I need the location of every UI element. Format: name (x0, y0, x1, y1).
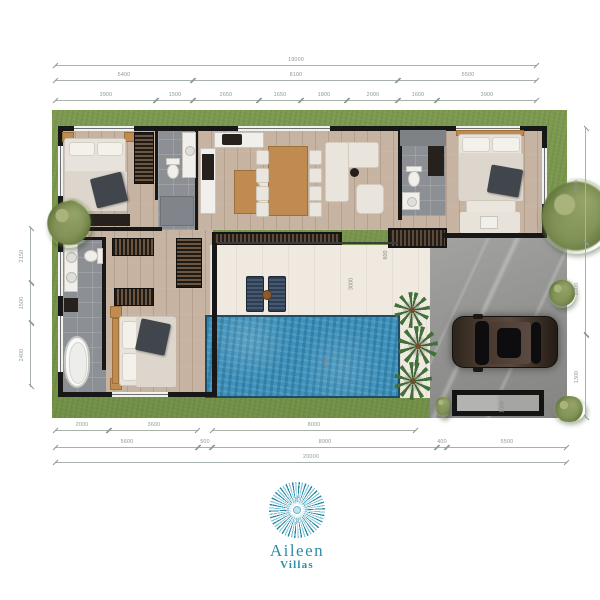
bush-right-mid (548, 278, 576, 308)
dimension-segment: 2000 (347, 100, 398, 101)
dimension-label: 3600 (147, 422, 160, 427)
window-living-top (238, 126, 330, 131)
toilet-bowl (84, 250, 98, 262)
lounger-table (262, 290, 272, 300)
dimension-segment: 2650 (193, 100, 259, 101)
dimension-label: 8100 (289, 72, 302, 77)
dining-chair (256, 168, 269, 183)
dimension-label: 5500 (501, 439, 514, 444)
shower-bathroom-1 (160, 196, 194, 226)
dimension-label: 2150 (19, 249, 24, 262)
kitchen-sink (222, 134, 242, 145)
dimension-label: 8900 (318, 439, 331, 444)
dining-chair (256, 186, 269, 201)
dimension-label: 5000 (574, 179, 579, 192)
shower-bathroom-2 (400, 130, 446, 146)
dimension-segment: 5000 (585, 128, 586, 243)
sink-bathroom-2 (407, 197, 417, 207)
timber-deck-right (388, 228, 447, 248)
dimension-segment: 19000 (55, 65, 537, 66)
dimension-label: 19000 (288, 57, 304, 62)
dimension-label: 1500 (19, 297, 24, 310)
car-windshield (475, 321, 489, 365)
sofa-chaise (325, 142, 349, 202)
dimension-segment: 8000 (212, 430, 416, 431)
wardrobe-corridor (176, 238, 202, 288)
bush-right-bottom (552, 396, 586, 422)
dimension-segment: 5400 (55, 80, 193, 81)
pillow (122, 321, 137, 349)
toilet-bowl (167, 164, 179, 179)
window-bedroom1-top (74, 126, 134, 131)
sliding-door-terrace (217, 242, 398, 244)
dimension-segment: 1300 (585, 335, 586, 418)
car-mirror (473, 367, 483, 372)
dining-chair (309, 168, 322, 183)
dimension-segment: 1800 (301, 100, 347, 101)
interior-dimension-label: 600 (383, 250, 388, 259)
dimension-segment: 5000 (585, 243, 586, 335)
dimension-segment: 1600 (398, 100, 437, 101)
interior-dimension-label: 3000 (349, 278, 354, 290)
toilet-bowl (408, 171, 420, 187)
palm-tree (398, 326, 438, 366)
dimension-label: 1500 (168, 92, 181, 97)
bed-bedroom-2 (458, 134, 522, 200)
dimension-label: 2400 (19, 349, 24, 362)
dimension-label: 20000 (303, 454, 319, 459)
pillow (122, 353, 137, 381)
pillow (97, 142, 123, 156)
dimension-label: 3900 (481, 92, 494, 97)
dimension-segment: 3900 (55, 100, 156, 101)
dimension-segment: 1500 (30, 283, 31, 323)
bathtub (64, 336, 90, 388)
wall-leftwing-right (212, 244, 217, 397)
wall-bedroom1-bathroom1 (155, 130, 158, 200)
dimension-segment: 5500 (398, 80, 537, 81)
floor-plan-canvas: Aileen Villas 19000540081005500390015002… (0, 0, 600, 600)
dimension-segment: 1500 (156, 100, 193, 101)
bed-bedroom-3 (119, 316, 175, 386)
dimension-segment: 1650 (259, 100, 301, 101)
sink-bathroom-3 (66, 272, 77, 283)
wardrobe-corridor (114, 288, 154, 306)
headboard-bedroom-3 (112, 318, 119, 384)
dresser-bedroom-1 (86, 214, 130, 226)
interior-dimension-label: 3000 (324, 355, 329, 367)
driveway-gate (452, 390, 544, 416)
palm-tree (394, 362, 432, 400)
wardrobe-bedroom-1 (134, 132, 154, 184)
window-bedroom3-left (58, 316, 63, 372)
dimension-label: 1650 (274, 92, 287, 97)
window-bathroom3-left (58, 252, 63, 296)
dimension-segment: 2000 (55, 430, 109, 431)
dimension-label: 5500 (461, 72, 474, 77)
logo-name: Aileen (237, 541, 357, 561)
dimension-segment: 8100 (193, 80, 398, 81)
dimension-label: 500 (200, 439, 210, 444)
sink-bathroom-3 (66, 252, 77, 263)
rug-table (480, 216, 498, 229)
laundry-unit (64, 298, 78, 312)
dining-chair (256, 202, 269, 217)
car-mirror (473, 314, 483, 319)
dimension-segment: 3600 (109, 430, 198, 431)
bathtub-basin (69, 342, 87, 384)
dimension-label: 8000 (308, 422, 321, 427)
dimension-label: 5600 (120, 439, 133, 444)
side-table (350, 168, 359, 177)
dining-chair (309, 186, 322, 201)
wall-bedroom2-bottom (443, 233, 547, 238)
wardrobe-corridor (112, 238, 154, 256)
logo-subtitle: Villas (237, 559, 357, 571)
dimension-segment: 20000 (55, 462, 567, 463)
dimension-segment: 5600 (55, 447, 198, 448)
dimension-segment: 8900 (212, 447, 437, 448)
palm-tree (394, 292, 430, 328)
dining-table (268, 146, 308, 216)
dimension-label: 2000 (76, 422, 89, 427)
car-rear-window (531, 322, 541, 364)
dimension-label: 5400 (118, 72, 131, 77)
dimension-segment: 3900 (437, 100, 537, 101)
dimension-label: 400 (437, 439, 447, 444)
dimension-label: 1300 (574, 370, 579, 383)
armchair (356, 184, 384, 214)
sink-bathroom-1 (185, 146, 195, 156)
dimension-segment: 2400 (30, 323, 31, 387)
pillow (462, 137, 490, 152)
dimension-label: 2650 (220, 92, 233, 97)
bush-left (46, 198, 92, 248)
bush-gate-left (436, 394, 450, 418)
dimension-label: 2000 (366, 92, 379, 97)
pillow (69, 142, 95, 156)
dining-chair (309, 150, 322, 165)
window-bedroom3-bottom (112, 392, 168, 397)
pillow (492, 137, 520, 152)
dimension-label: 3900 (99, 92, 112, 97)
interior-dimension-label: 1000 (500, 401, 505, 413)
swimming-pool (205, 315, 400, 398)
dimension-segment: 2150 (30, 228, 31, 283)
throw-blanket (487, 164, 523, 197)
car-sunroof (497, 328, 521, 358)
window-bedroom1-left (58, 146, 63, 196)
dining-chair (309, 202, 322, 217)
dimension-label: 1600 (411, 92, 424, 97)
car (452, 316, 558, 368)
dimension-segment: 5500 (447, 447, 567, 448)
sunburst-dot (293, 506, 301, 514)
dining-chair (256, 150, 269, 165)
vanity-dark-bathroom-2 (428, 146, 444, 176)
cooktop (202, 154, 214, 180)
dimension-label: 5000 (574, 283, 579, 296)
dimension-label: 1800 (318, 92, 331, 97)
